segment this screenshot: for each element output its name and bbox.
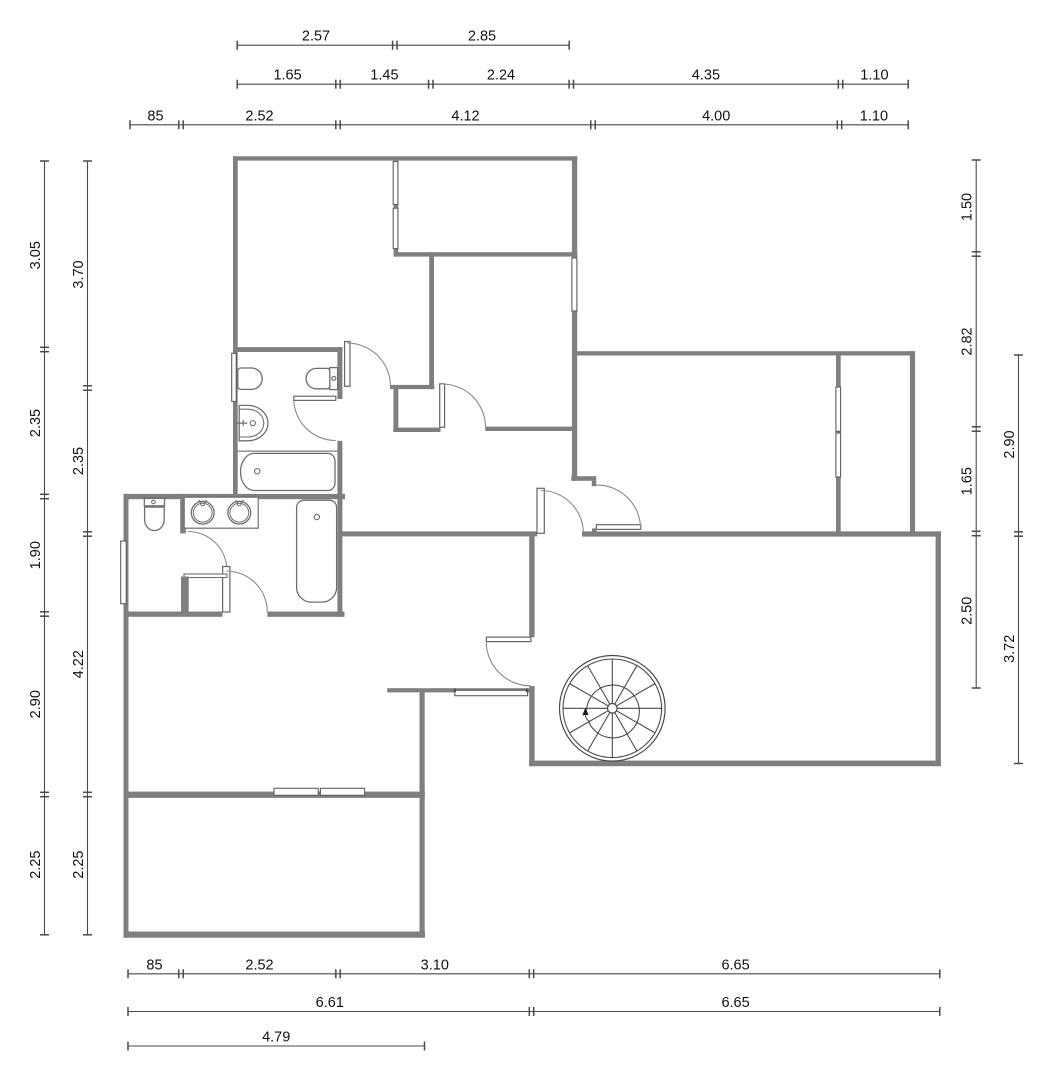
svg-text:2.52: 2.52 xyxy=(245,108,273,124)
svg-text:2.57: 2.57 xyxy=(302,29,330,45)
svg-text:1.90: 1.90 xyxy=(28,541,44,569)
svg-text:2.85: 2.85 xyxy=(468,29,496,45)
svg-text:3.70: 3.70 xyxy=(71,260,87,288)
svg-text:2.52: 2.52 xyxy=(245,957,273,973)
svg-text:1.50: 1.50 xyxy=(960,193,976,221)
svg-text:4.22: 4.22 xyxy=(71,650,87,678)
svg-text:6.65: 6.65 xyxy=(721,995,749,1011)
svg-text:1.45: 1.45 xyxy=(370,68,398,84)
svg-text:2.82: 2.82 xyxy=(960,327,976,355)
svg-text:2.24: 2.24 xyxy=(487,68,515,84)
svg-text:3.10: 3.10 xyxy=(421,957,449,973)
svg-text:2.25: 2.25 xyxy=(28,850,44,878)
svg-text:3.72: 3.72 xyxy=(1002,635,1018,663)
svg-text:1.65: 1.65 xyxy=(960,467,976,495)
svg-text:1.10: 1.10 xyxy=(860,108,888,124)
svg-text:6.65: 6.65 xyxy=(721,957,749,973)
svg-text:1.10: 1.10 xyxy=(860,68,888,84)
svg-text:2.25: 2.25 xyxy=(71,850,87,878)
svg-text:85: 85 xyxy=(147,108,163,124)
svg-text:2.35: 2.35 xyxy=(28,409,44,437)
svg-text:85: 85 xyxy=(146,957,162,973)
svg-text:2.50: 2.50 xyxy=(960,597,976,625)
svg-text:4.00: 4.00 xyxy=(702,108,730,124)
svg-text:1.65: 1.65 xyxy=(273,68,301,84)
svg-text:4.12: 4.12 xyxy=(451,108,479,124)
svg-text:2.90: 2.90 xyxy=(1002,430,1018,458)
svg-text:2.35: 2.35 xyxy=(71,447,87,475)
svg-text:4.35: 4.35 xyxy=(692,68,720,84)
svg-text:4.79: 4.79 xyxy=(262,1030,290,1046)
svg-text:6.61: 6.61 xyxy=(316,995,344,1011)
svg-text:3.05: 3.05 xyxy=(28,241,44,269)
svg-text:2.90: 2.90 xyxy=(28,690,44,718)
